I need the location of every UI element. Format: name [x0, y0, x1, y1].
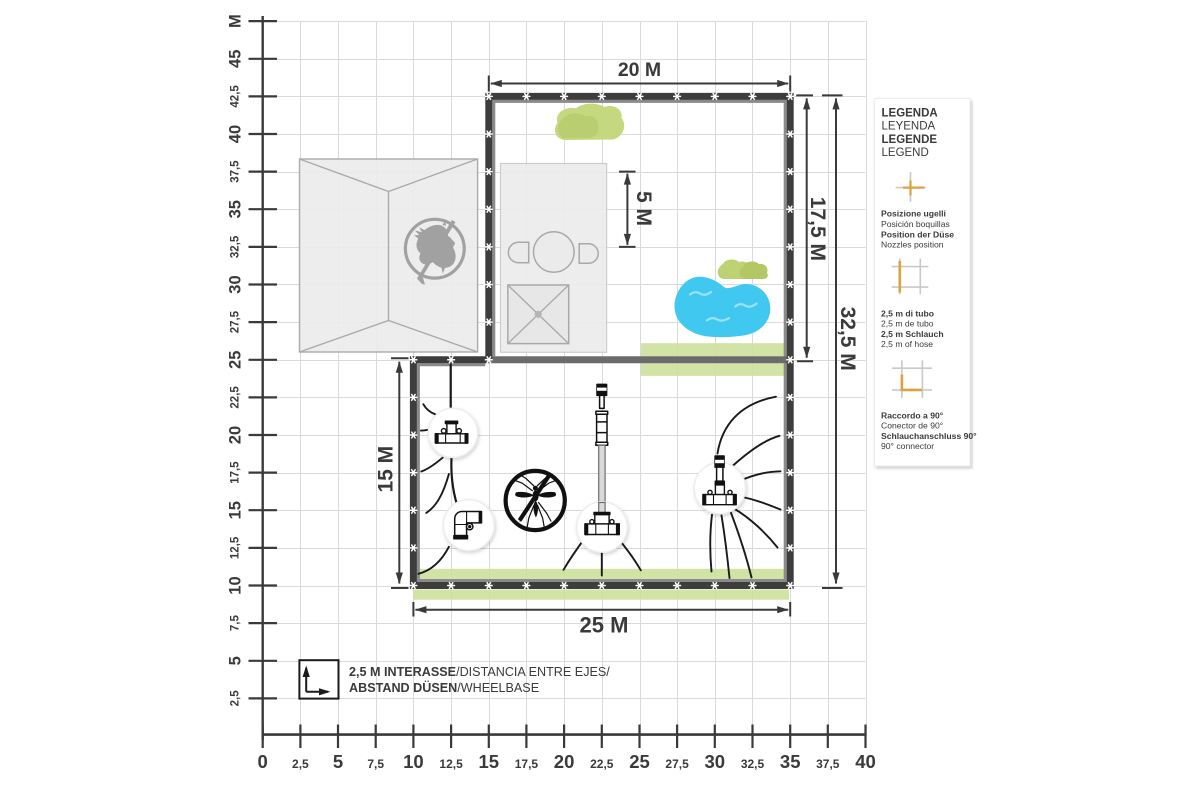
- svg-text:20: 20: [554, 751, 575, 772]
- svg-text:LEYENDA: LEYENDA: [882, 121, 936, 133]
- svg-text:35: 35: [780, 751, 801, 772]
- svg-text:10: 10: [403, 751, 424, 772]
- svg-text:25: 25: [629, 751, 650, 772]
- svg-text:17,5 M: 17,5 M: [806, 197, 829, 261]
- svg-text:Schlauchanschluss 90°: Schlauchanschluss 90°: [881, 431, 977, 441]
- svg-text:Raccordo a 90°: Raccordo a 90°: [881, 410, 944, 420]
- svg-text:12,5: 12,5: [439, 757, 463, 771]
- svg-text:2,5: 2,5: [230, 690, 242, 707]
- svg-text:5 M: 5 M: [632, 191, 655, 226]
- svg-text:20 M: 20 M: [618, 59, 661, 81]
- svg-text:0: 0: [258, 751, 268, 772]
- svg-text:30: 30: [227, 275, 245, 293]
- svg-text:35: 35: [227, 200, 245, 218]
- svg-text:27,5: 27,5: [665, 757, 689, 771]
- svg-text:22,5: 22,5: [590, 757, 614, 771]
- svg-text:LEGEND: LEGEND: [882, 147, 929, 159]
- svg-text:10: 10: [227, 576, 245, 594]
- svg-text:M: M: [227, 14, 245, 28]
- svg-text:45: 45: [227, 50, 245, 68]
- svg-text:37,5: 37,5: [816, 757, 840, 771]
- svg-text:25 M: 25 M: [580, 613, 629, 638]
- svg-text:ABSTAND DÜSEN/WHEELBASE: ABSTAND DÜSEN/WHEELBASE: [349, 680, 539, 695]
- svg-text:32,5: 32,5: [230, 235, 242, 258]
- svg-text:Posición boquillas: Posición boquillas: [881, 219, 950, 229]
- svg-text:5: 5: [227, 656, 245, 665]
- svg-text:30: 30: [705, 751, 726, 772]
- svg-text:32,5: 32,5: [741, 757, 765, 771]
- svg-text:2,5 m di tubo: 2,5 m di tubo: [881, 308, 934, 318]
- svg-text:2,5 m of hose: 2,5 m of hose: [881, 339, 933, 349]
- svg-text:15 M: 15 M: [375, 446, 398, 493]
- svg-text:Nozzles position: Nozzles position: [881, 240, 944, 250]
- svg-text:LEGENDA: LEGENDA: [882, 108, 938, 120]
- svg-text:LEGENDE: LEGENDE: [882, 134, 938, 146]
- svg-text:22,5: 22,5: [230, 386, 242, 409]
- svg-text:20: 20: [227, 426, 245, 444]
- svg-text:32,5 M: 32,5 M: [836, 307, 859, 371]
- svg-text:42,5: 42,5: [230, 85, 242, 108]
- svg-text:2,5 m Schlauch: 2,5 m Schlauch: [881, 329, 944, 339]
- svg-text:12,5: 12,5: [230, 536, 242, 559]
- svg-text:Conector de 90°: Conector de 90°: [881, 421, 943, 431]
- svg-text:Posizione ugelli: Posizione ugelli: [881, 209, 946, 219]
- svg-text:15: 15: [227, 501, 245, 519]
- svg-text:2,5 m de tubo: 2,5 m de tubo: [881, 319, 934, 329]
- svg-text:Position der Düse: Position der Düse: [881, 229, 954, 239]
- svg-text:40: 40: [855, 751, 876, 772]
- svg-text:27,5: 27,5: [230, 310, 242, 333]
- svg-text:2,5: 2,5: [292, 757, 309, 771]
- svg-text:7,5: 7,5: [230, 615, 242, 632]
- svg-text:90° connector: 90° connector: [881, 441, 934, 451]
- svg-text:2,5 M INTERASSE/DISTANCIA ENTR: 2,5 M INTERASSE/DISTANCIA ENTRE EJES/: [349, 665, 610, 679]
- svg-text:5: 5: [333, 751, 343, 772]
- svg-text:17,5: 17,5: [515, 757, 539, 771]
- svg-text:37,5: 37,5: [230, 160, 242, 183]
- svg-text:40: 40: [227, 125, 245, 143]
- svg-text:15: 15: [479, 751, 500, 772]
- svg-text:17,5: 17,5: [230, 461, 242, 484]
- svg-text:7,5: 7,5: [367, 757, 384, 771]
- svg-text:25: 25: [227, 351, 245, 369]
